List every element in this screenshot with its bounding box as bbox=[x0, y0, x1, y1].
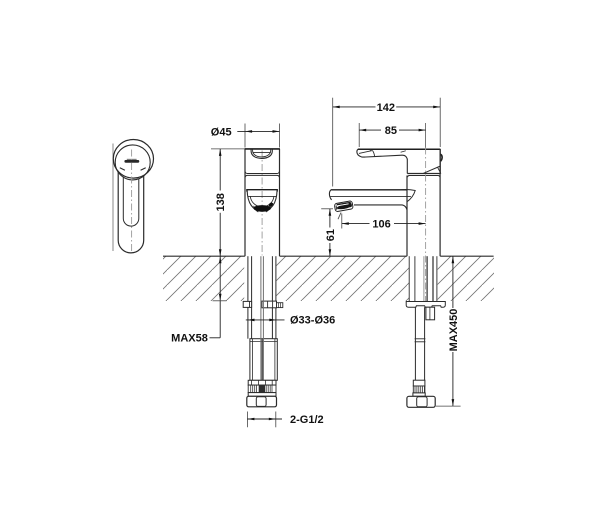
svg-text:61: 61 bbox=[325, 229, 337, 241]
svg-text:85: 85 bbox=[385, 125, 397, 137]
svg-text:138: 138 bbox=[215, 193, 227, 211]
svg-text:142: 142 bbox=[377, 102, 395, 114]
svg-text:Ø33-Ø36: Ø33-Ø36 bbox=[290, 315, 335, 327]
svg-text:MAX450: MAX450 bbox=[448, 309, 460, 352]
svg-text:Ø45: Ø45 bbox=[211, 126, 232, 138]
svg-text:2-G1/2: 2-G1/2 bbox=[290, 414, 324, 426]
svg-text:MAX58: MAX58 bbox=[171, 333, 208, 345]
svg-text:106: 106 bbox=[372, 219, 390, 231]
